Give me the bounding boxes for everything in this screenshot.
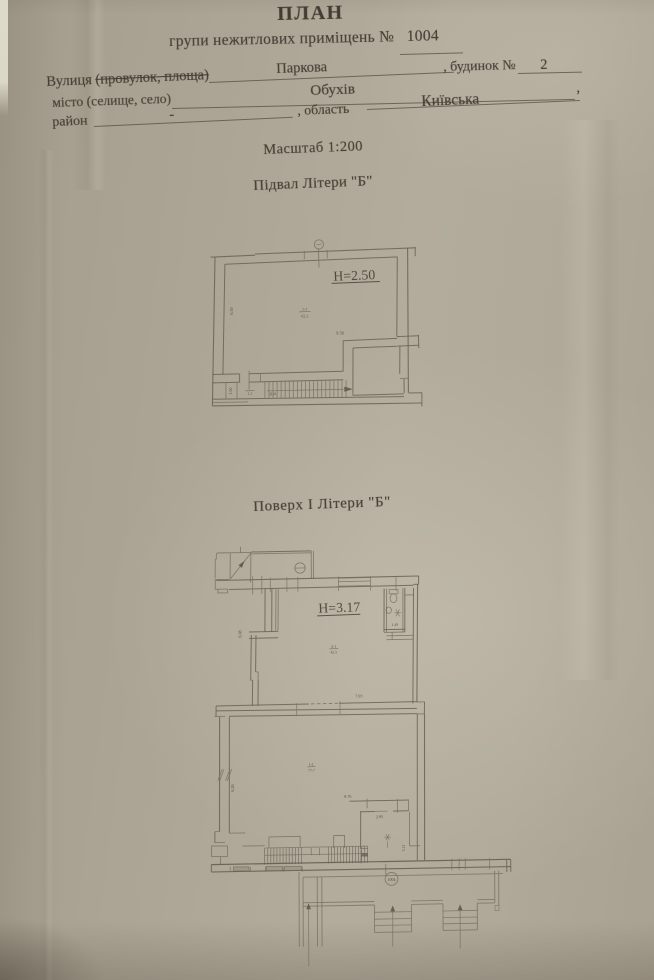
svg-text:9.56: 9.56	[336, 330, 345, 335]
svg-text:7.93: 7.93	[355, 693, 362, 698]
svg-text:1-1: 1-1	[309, 763, 314, 767]
svg-text:1.2: 1.2	[248, 392, 253, 396]
svg-text:62.2: 62.2	[301, 313, 308, 318]
svg-text:1-1: 1-1	[302, 306, 308, 311]
svg-text:42.5: 42.5	[330, 650, 337, 654]
svg-text:П10: П10	[269, 391, 276, 396]
svg-text:2-1: 2-1	[331, 645, 336, 649]
svg-text:3.12: 3.12	[402, 845, 406, 852]
svg-text:2.95: 2.95	[376, 814, 383, 819]
svg-text:9.76: 9.76	[344, 794, 351, 799]
svg-text:1.00: 1.00	[228, 388, 233, 395]
svg-text:6.26: 6.26	[230, 784, 235, 791]
svg-text:1.49: 1.49	[391, 623, 398, 627]
svg-text:6.50: 6.50	[229, 307, 234, 314]
svg-text:77.7: 77.7	[308, 768, 315, 772]
svg-text:6.08: 6.08	[238, 630, 243, 637]
svg-text:1004: 1004	[388, 877, 396, 882]
svg-text:Н=2.50: Н=2.50	[333, 267, 376, 284]
svg-text:Н=3.17: Н=3.17	[318, 599, 360, 615]
